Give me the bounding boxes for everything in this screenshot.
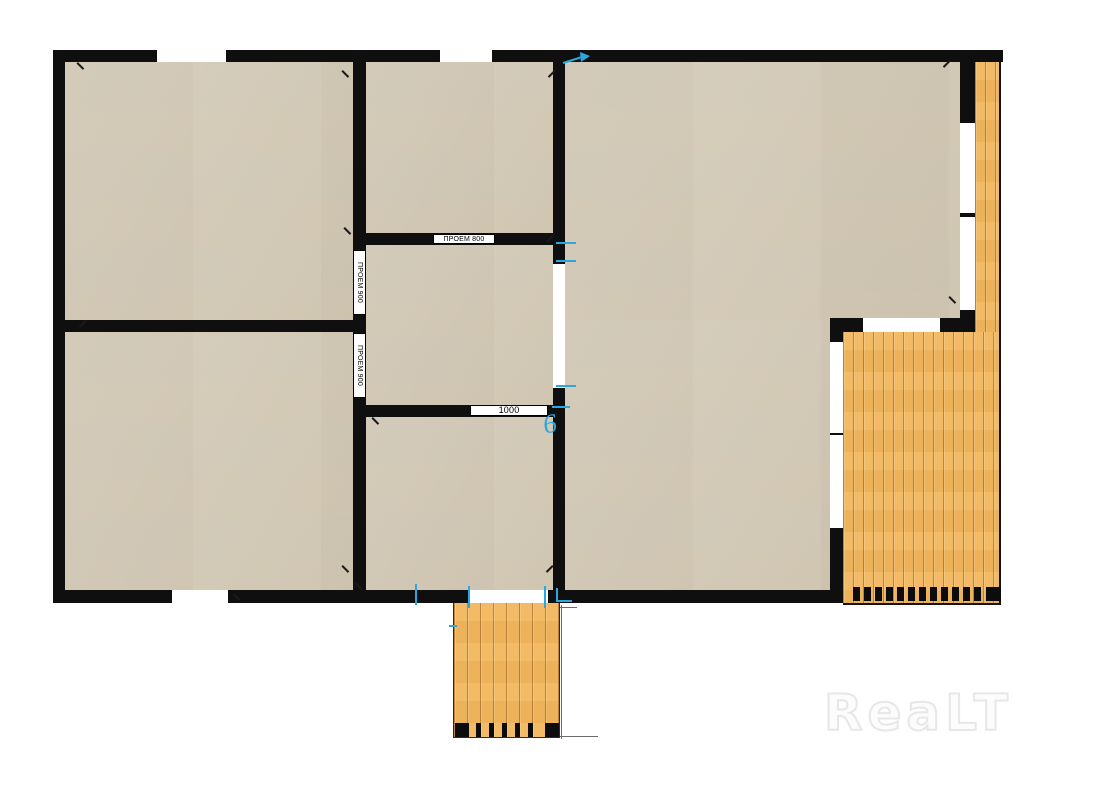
deck-joist-mark xyxy=(515,723,520,737)
deck-joist-mark xyxy=(875,587,882,601)
deck-terrace-right xyxy=(843,332,1001,605)
deck-joist-mark xyxy=(897,587,904,601)
deck-joist-mark xyxy=(952,587,959,601)
deck-joist-mark xyxy=(528,723,533,737)
wall-segment xyxy=(53,50,65,603)
room-floor xyxy=(366,417,553,590)
floor-plan-canvas: ReaLT ПРОЕМ 800ПРОЕМ 900ПРОЕМ 90010006 xyxy=(0,0,1100,802)
window-opening xyxy=(157,50,226,62)
window-opening xyxy=(172,590,228,603)
realt-watermark: ReaLT xyxy=(824,684,1013,742)
deck-strip-right xyxy=(975,62,1001,332)
deck-joist-mark xyxy=(986,587,1001,601)
cyan-marker xyxy=(558,600,572,602)
cyan-marker xyxy=(556,385,576,387)
window-opening xyxy=(960,123,975,213)
deck-joist-mark xyxy=(919,587,926,601)
deck-joist-mark xyxy=(853,587,860,601)
opening-dimension-label: ПРОЕМ 900 xyxy=(353,250,366,315)
deck-joist-mark xyxy=(974,587,981,601)
window-opening xyxy=(830,342,843,433)
cyan-arrow-marker xyxy=(562,52,590,66)
deck-joist-mark xyxy=(476,723,481,737)
opening-dimension-label: 1000 xyxy=(470,405,548,416)
dimension-line xyxy=(561,605,562,739)
cyan-marker xyxy=(415,584,417,605)
deck-porch-bottom xyxy=(453,603,560,738)
cyan-marker xyxy=(544,586,546,608)
window-opening xyxy=(440,50,492,62)
window-opening xyxy=(468,590,548,603)
window-opening xyxy=(553,264,565,388)
room-floor xyxy=(65,62,353,320)
deck-joist-mark xyxy=(545,723,559,737)
wall-segment xyxy=(65,320,353,332)
room-floor xyxy=(565,320,830,590)
deck-joist-mark xyxy=(941,587,948,601)
deck-joist-mark xyxy=(963,587,970,601)
cyan-marker xyxy=(556,242,576,244)
window-opening xyxy=(863,318,940,332)
cyan-marker xyxy=(556,260,576,262)
deck-joist-mark xyxy=(502,723,507,737)
opening-dimension-label: ПРОЕМ 900 xyxy=(353,333,366,398)
room-floor xyxy=(565,62,960,320)
dimension-line xyxy=(560,607,577,608)
wall-segment xyxy=(353,50,366,590)
deck-joist-mark xyxy=(489,723,494,737)
dimension-line xyxy=(560,736,598,737)
room-floor xyxy=(366,62,553,233)
cyan-marker xyxy=(449,625,457,627)
window-opening xyxy=(830,435,843,528)
room-floor xyxy=(366,245,553,405)
cyan-marker xyxy=(468,586,470,608)
deck-joist-mark xyxy=(864,587,871,601)
window-opening xyxy=(960,217,975,310)
deck-joist-mark xyxy=(908,587,915,601)
room-floor xyxy=(65,332,353,590)
deck-joist-mark xyxy=(455,723,469,737)
opening-dimension-label: ПРОЕМ 800 xyxy=(433,234,495,244)
deck-joist-mark xyxy=(930,587,937,601)
deck-joist-mark xyxy=(886,587,893,601)
